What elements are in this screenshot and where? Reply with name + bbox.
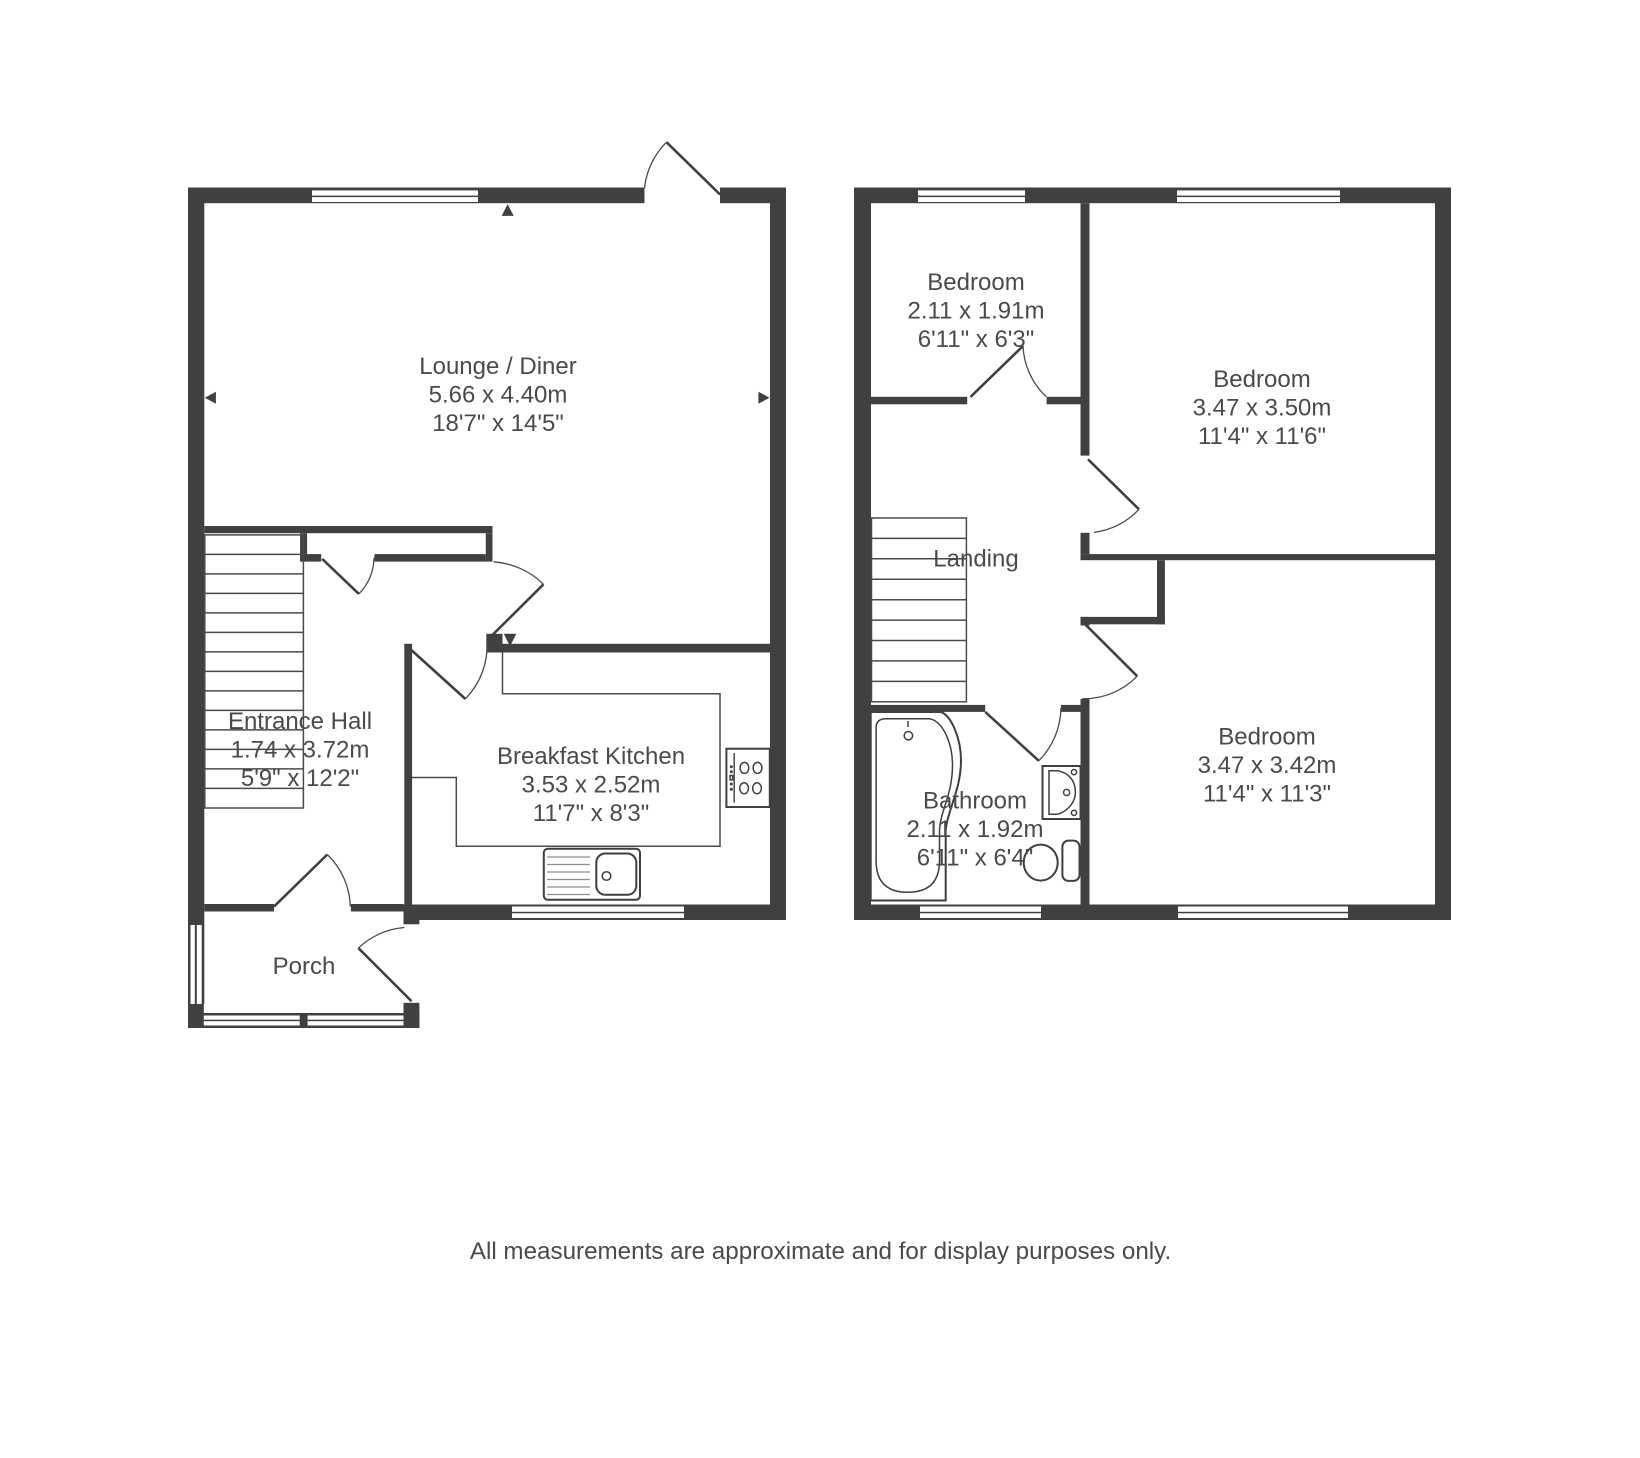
svg-text:6'11" x 6'4": 6'11" x 6'4" [917, 845, 1034, 872]
svg-text:3.47 x 3.50m: 3.47 x 3.50m [1193, 395, 1332, 422]
svg-text:Porch: Porch [273, 953, 336, 980]
svg-text:All measurements are approxima: All measurements are approximate and for… [470, 1238, 1171, 1265]
svg-text:11'7" x 8'3": 11'7" x 8'3" [533, 800, 650, 827]
svg-text:2.11 x 1.91m: 2.11 x 1.91m [908, 298, 1045, 325]
svg-text:3.47 x 3.42m: 3.47 x 3.42m [1198, 752, 1337, 779]
svg-text:1.74 x 3.72m: 1.74 x 3.72m [231, 737, 370, 764]
svg-text:18'7" x 14'5": 18'7" x 14'5" [432, 410, 564, 437]
svg-text:2.11 x 1.92m: 2.11 x 1.92m [907, 816, 1044, 843]
svg-text:5'9" x 12'2": 5'9" x 12'2" [241, 765, 359, 792]
svg-text:Lounge / Diner: Lounge / Diner [419, 353, 576, 380]
svg-text:Breakfast Kitchen: Breakfast Kitchen [497, 743, 685, 770]
svg-text:Bathroom: Bathroom [923, 788, 1027, 815]
svg-text:Bedroom: Bedroom [1213, 366, 1310, 393]
svg-text:Entrance Hall: Entrance Hall [228, 708, 372, 735]
svg-text:3.53 x 2.52m: 3.53 x 2.52m [522, 772, 661, 799]
svg-text:6'11" x 6'3": 6'11" x 6'3" [918, 326, 1035, 353]
svg-text:11'4" x 11'3": 11'4" x 11'3" [1203, 781, 1331, 808]
svg-text:Bedroom: Bedroom [927, 269, 1024, 296]
svg-text:Landing: Landing [933, 546, 1018, 573]
svg-text:Bedroom: Bedroom [1218, 724, 1315, 751]
svg-text:11'4" x 11'6": 11'4" x 11'6" [1198, 423, 1326, 450]
svg-text:5.66 x 4.40m: 5.66 x 4.40m [429, 382, 568, 409]
